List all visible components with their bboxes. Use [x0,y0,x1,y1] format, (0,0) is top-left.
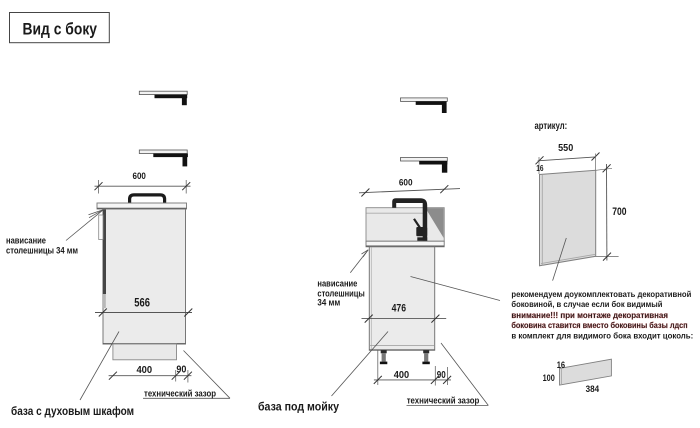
svg-text:566: 566 [134,297,150,310]
svg-text:рекомендуем доукомплектовать д: рекомендуем доукомплектовать декоративно… [511,289,691,299]
svg-text:база под мойку: база под мойку [258,399,339,413]
svg-text:артикул:: артикул: [535,121,568,132]
svg-text:100: 100 [543,373,555,384]
svg-text:боковина ставится вместо боков: боковина ставится вместо боковины базы л… [511,320,687,330]
svg-text:550: 550 [558,143,573,154]
svg-text:технический зазор: технический зазор [407,395,480,405]
svg-text:внимание!!! при монтаже декора: внимание!!! при монтаже декоративная [511,310,668,320]
svg-text:16: 16 [536,164,544,173]
svg-text:476: 476 [392,303,406,315]
svg-text:600: 600 [399,177,413,187]
svg-text:600: 600 [133,171,146,181]
svg-text:база с духовым шкафом: база с духовым шкафом [11,404,134,418]
svg-text:технический зазор: технический зазор [144,388,216,398]
svg-text:Вид с боку: Вид с боку [23,21,98,39]
svg-text:боковиной, в случае если бок в: боковиной, в случае если бок видимый [511,299,662,309]
svg-text:400: 400 [394,370,410,381]
svg-text:384: 384 [586,384,600,395]
svg-text:90: 90 [176,365,186,376]
svg-text:400: 400 [136,365,152,376]
svg-text:90: 90 [437,370,446,381]
svg-text:в комплект для видимого бока в: в комплект для видимого бока входит цоко… [511,331,693,341]
svg-text:700: 700 [612,206,626,218]
svg-text:столешницы 34 мм: столешницы 34 мм [6,245,78,256]
svg-text:34 мм: 34 мм [317,297,340,308]
svg-text:16: 16 [557,360,565,370]
